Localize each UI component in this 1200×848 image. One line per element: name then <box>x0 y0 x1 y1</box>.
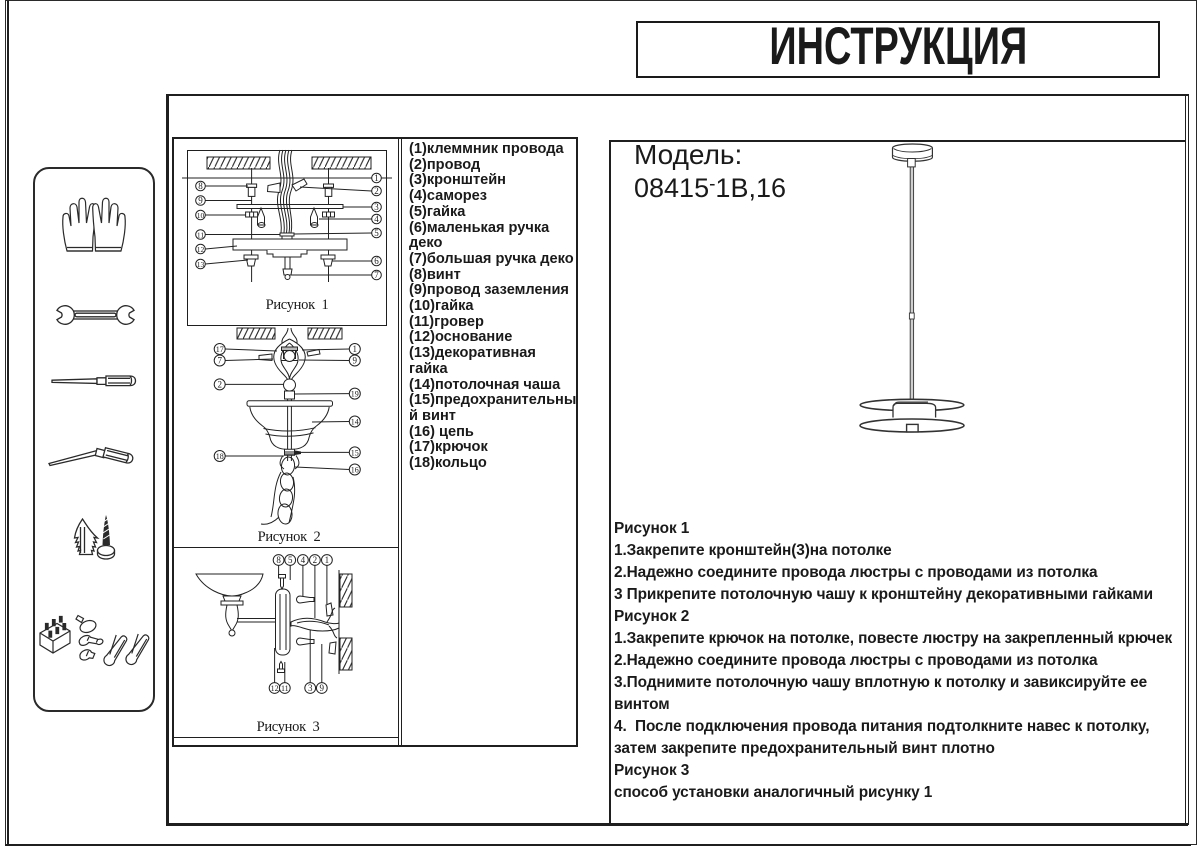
svg-text:1: 1 <box>353 344 358 354</box>
svg-text:11: 11 <box>197 231 204 240</box>
svg-text:7: 7 <box>374 270 379 280</box>
svg-text:5: 5 <box>288 555 293 565</box>
svg-text:14: 14 <box>351 418 359 427</box>
svg-text:12: 12 <box>197 245 205 254</box>
svg-text:19: 19 <box>351 390 359 399</box>
svg-text:1: 1 <box>325 555 330 565</box>
svg-text:5: 5 <box>374 228 379 238</box>
svg-text:8: 8 <box>276 555 281 565</box>
svg-text:2: 2 <box>217 379 222 389</box>
svg-text:4: 4 <box>374 214 379 224</box>
svg-text:6: 6 <box>374 256 379 266</box>
svg-text:9: 9 <box>198 196 203 206</box>
svg-text:17: 17 <box>216 345 224 354</box>
svg-text:1: 1 <box>374 173 379 183</box>
svg-text:3: 3 <box>374 202 379 212</box>
svg-text:7: 7 <box>217 356 222 366</box>
svg-text:9: 9 <box>353 356 358 366</box>
svg-text:9: 9 <box>320 683 325 693</box>
svg-text:8: 8 <box>198 181 203 191</box>
svg-text:10: 10 <box>197 211 205 220</box>
svg-text:12: 12 <box>271 684 279 693</box>
svg-text:2: 2 <box>374 186 379 196</box>
svg-text:15: 15 <box>351 448 359 457</box>
svg-text:18: 18 <box>216 452 224 461</box>
svg-text:13: 13 <box>197 260 205 269</box>
svg-text:3: 3 <box>308 683 313 693</box>
svg-text:16: 16 <box>351 466 359 475</box>
svg-text:4: 4 <box>301 555 306 565</box>
svg-text:2: 2 <box>313 555 318 565</box>
svg-text:11: 11 <box>281 684 289 693</box>
